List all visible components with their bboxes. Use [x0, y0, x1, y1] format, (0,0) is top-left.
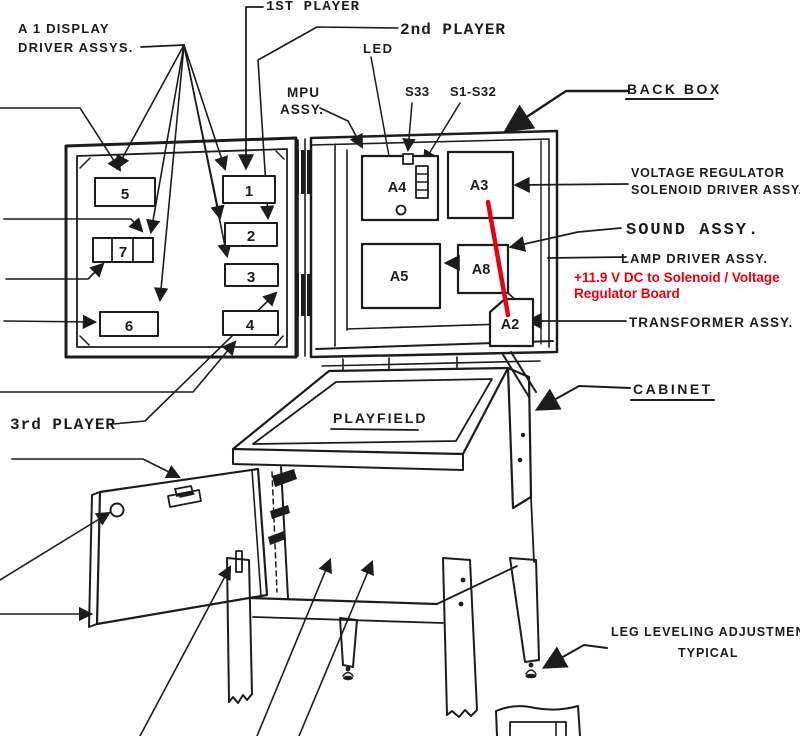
- front-right-leg: [443, 558, 477, 717]
- mpu-led: [397, 206, 406, 215]
- switch-s33: [403, 154, 413, 164]
- red-annotation-line1: +11.9 V DC to Solenoid / Voltage: [574, 270, 780, 285]
- label-playfield: PLAYFIELD: [333, 410, 428, 426]
- label-led: LED: [363, 41, 394, 56]
- display-box-1-label: 1: [245, 183, 253, 200]
- label-s33: S33: [405, 84, 430, 99]
- cabinet-front-door: [89, 469, 267, 627]
- label-s1-s32: S1-S32: [450, 84, 496, 99]
- bottom-corner-detail: [496, 706, 580, 736]
- rear-left-leg: [340, 618, 357, 667]
- display-box-2-label: 2: [247, 228, 255, 245]
- leader-from-left-4: [4, 321, 95, 322]
- cabinet-hinge-hardware: [272, 469, 297, 487]
- board-a2-label: A2: [501, 317, 520, 333]
- label-cabinet: CABINET: [633, 381, 713, 397]
- display-box-5-label: 5: [121, 186, 129, 203]
- label-mpu-line1: MPU: [287, 85, 320, 100]
- leader-from-left-6: [12, 459, 179, 477]
- label-transformer: TRANSFORMER ASSY.: [629, 315, 793, 330]
- label-third-player: 3rd PLAYER: [10, 416, 116, 434]
- label-lamp-driver: LAMP DRIVER ASSY.: [621, 251, 768, 266]
- label-back-box: BACK BOX: [627, 81, 722, 97]
- label-voltage-regulator-line2: SOLENOID DRIVER ASSY.: [631, 183, 800, 197]
- scanned-diagram-page: 5 7 6 1 2 3 4 A4 A3 A5 A8 A2 A 1 DISPLAY…: [0, 0, 800, 736]
- underline-playfield: [331, 429, 418, 430]
- board-a5-label: A5: [390, 269, 409, 285]
- backbox-hinge: [295, 139, 311, 356]
- board-a4-label: A4: [388, 180, 407, 196]
- label-first-player: 1ST PLAYER: [266, 0, 360, 15]
- label-voltage-regulator-line1: VOLTAGE REGULATOR: [631, 166, 785, 180]
- diagram-canvas: 5 7 6 1 2 3 4 A4 A3 A5 A8 A2 A 1 DISPLAY…: [0, 0, 800, 736]
- display-box-7-label: 7: [119, 244, 127, 261]
- cabinet-legs: [227, 558, 539, 717]
- leader-lamp-driver: [548, 257, 626, 258]
- leader-leg-leveling: [545, 645, 607, 667]
- red-annotation-line2: Regulator Board: [574, 286, 680, 301]
- board-a3-label: A3: [470, 178, 489, 194]
- leader-from-bottom-2: [257, 560, 330, 736]
- label-second-player: 2nd PLAYER: [400, 21, 506, 39]
- label-a1-display-line2: DRIVER ASSYS.: [18, 40, 134, 55]
- backbox-corner-brace: [502, 352, 536, 397]
- board-a8-label: A8: [472, 262, 491, 278]
- leg-leveler-foot: [529, 663, 534, 668]
- label-sound: SOUND ASSY.: [626, 221, 760, 240]
- leader-from-bottom-3: [299, 562, 372, 736]
- label-leg-leveling-line2: TYPICAL: [678, 646, 738, 660]
- rear-right-leg: [510, 558, 539, 662]
- leader-cabinet: [538, 386, 630, 409]
- label-leg-leveling-line1: LEG LEVELING ADJUSTMENT: [611, 625, 800, 639]
- label-a1-display-line1: A 1 DISPLAY: [18, 21, 110, 36]
- leader-from-left-7: [0, 513, 109, 580]
- display-box-3-label: 3: [247, 269, 255, 286]
- leader-voltage-regulator: [516, 184, 628, 185]
- label-mpu-line2: ASSY.: [280, 102, 324, 117]
- display-box-6-label: 6: [125, 318, 133, 335]
- leader-back-box: [507, 91, 628, 130]
- leader-display-driver: [141, 45, 184, 47]
- display-box-4-label: 4: [246, 317, 255, 334]
- cabinet-right-wall: [508, 368, 531, 508]
